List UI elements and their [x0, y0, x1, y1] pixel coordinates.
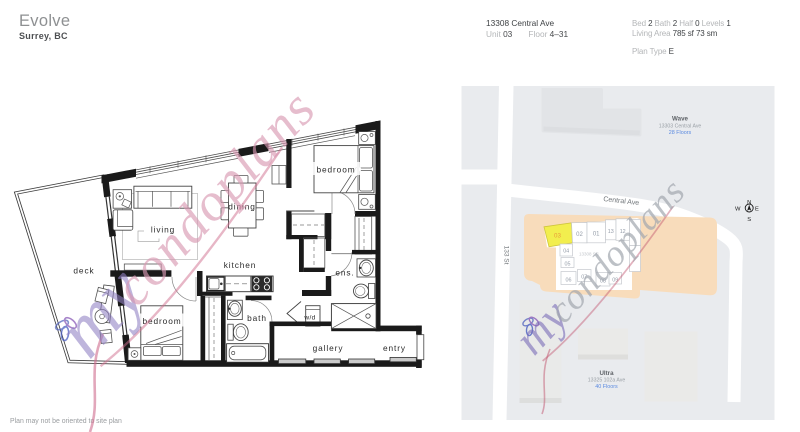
svg-text:S: S — [747, 217, 751, 223]
svg-text:W: W — [735, 206, 741, 212]
svg-text:03: 03 — [554, 233, 561, 240]
svg-text:02: 02 — [576, 232, 583, 238]
svg-text:kitchen: kitchen — [224, 260, 257, 270]
svg-text:05: 05 — [565, 262, 571, 268]
svg-text:bedroom: bedroom — [316, 165, 355, 175]
svg-text:13303 Central Ave: 13303 Central Ave — [659, 124, 702, 130]
svg-text:Ultra: Ultra — [599, 370, 614, 377]
svg-text:entry: entry — [383, 343, 406, 353]
svg-text:01: 01 — [593, 232, 600, 238]
svg-text:28 Floors: 28 Floors — [669, 130, 692, 136]
svg-text:133 St: 133 St — [503, 246, 510, 265]
svg-text:04: 04 — [563, 249, 569, 255]
svg-text:13325 102a Ave: 13325 102a Ave — [588, 378, 626, 384]
svg-text:bath: bath — [247, 313, 267, 323]
svg-text:40 Floors: 40 Floors — [595, 384, 618, 390]
svg-text:E: E — [755, 206, 759, 212]
svg-text:Wave: Wave — [672, 116, 688, 123]
svg-text:ens.: ens. — [335, 268, 354, 278]
svg-text:gallery: gallery — [313, 343, 344, 353]
svg-text:w/d: w/d — [303, 314, 315, 321]
